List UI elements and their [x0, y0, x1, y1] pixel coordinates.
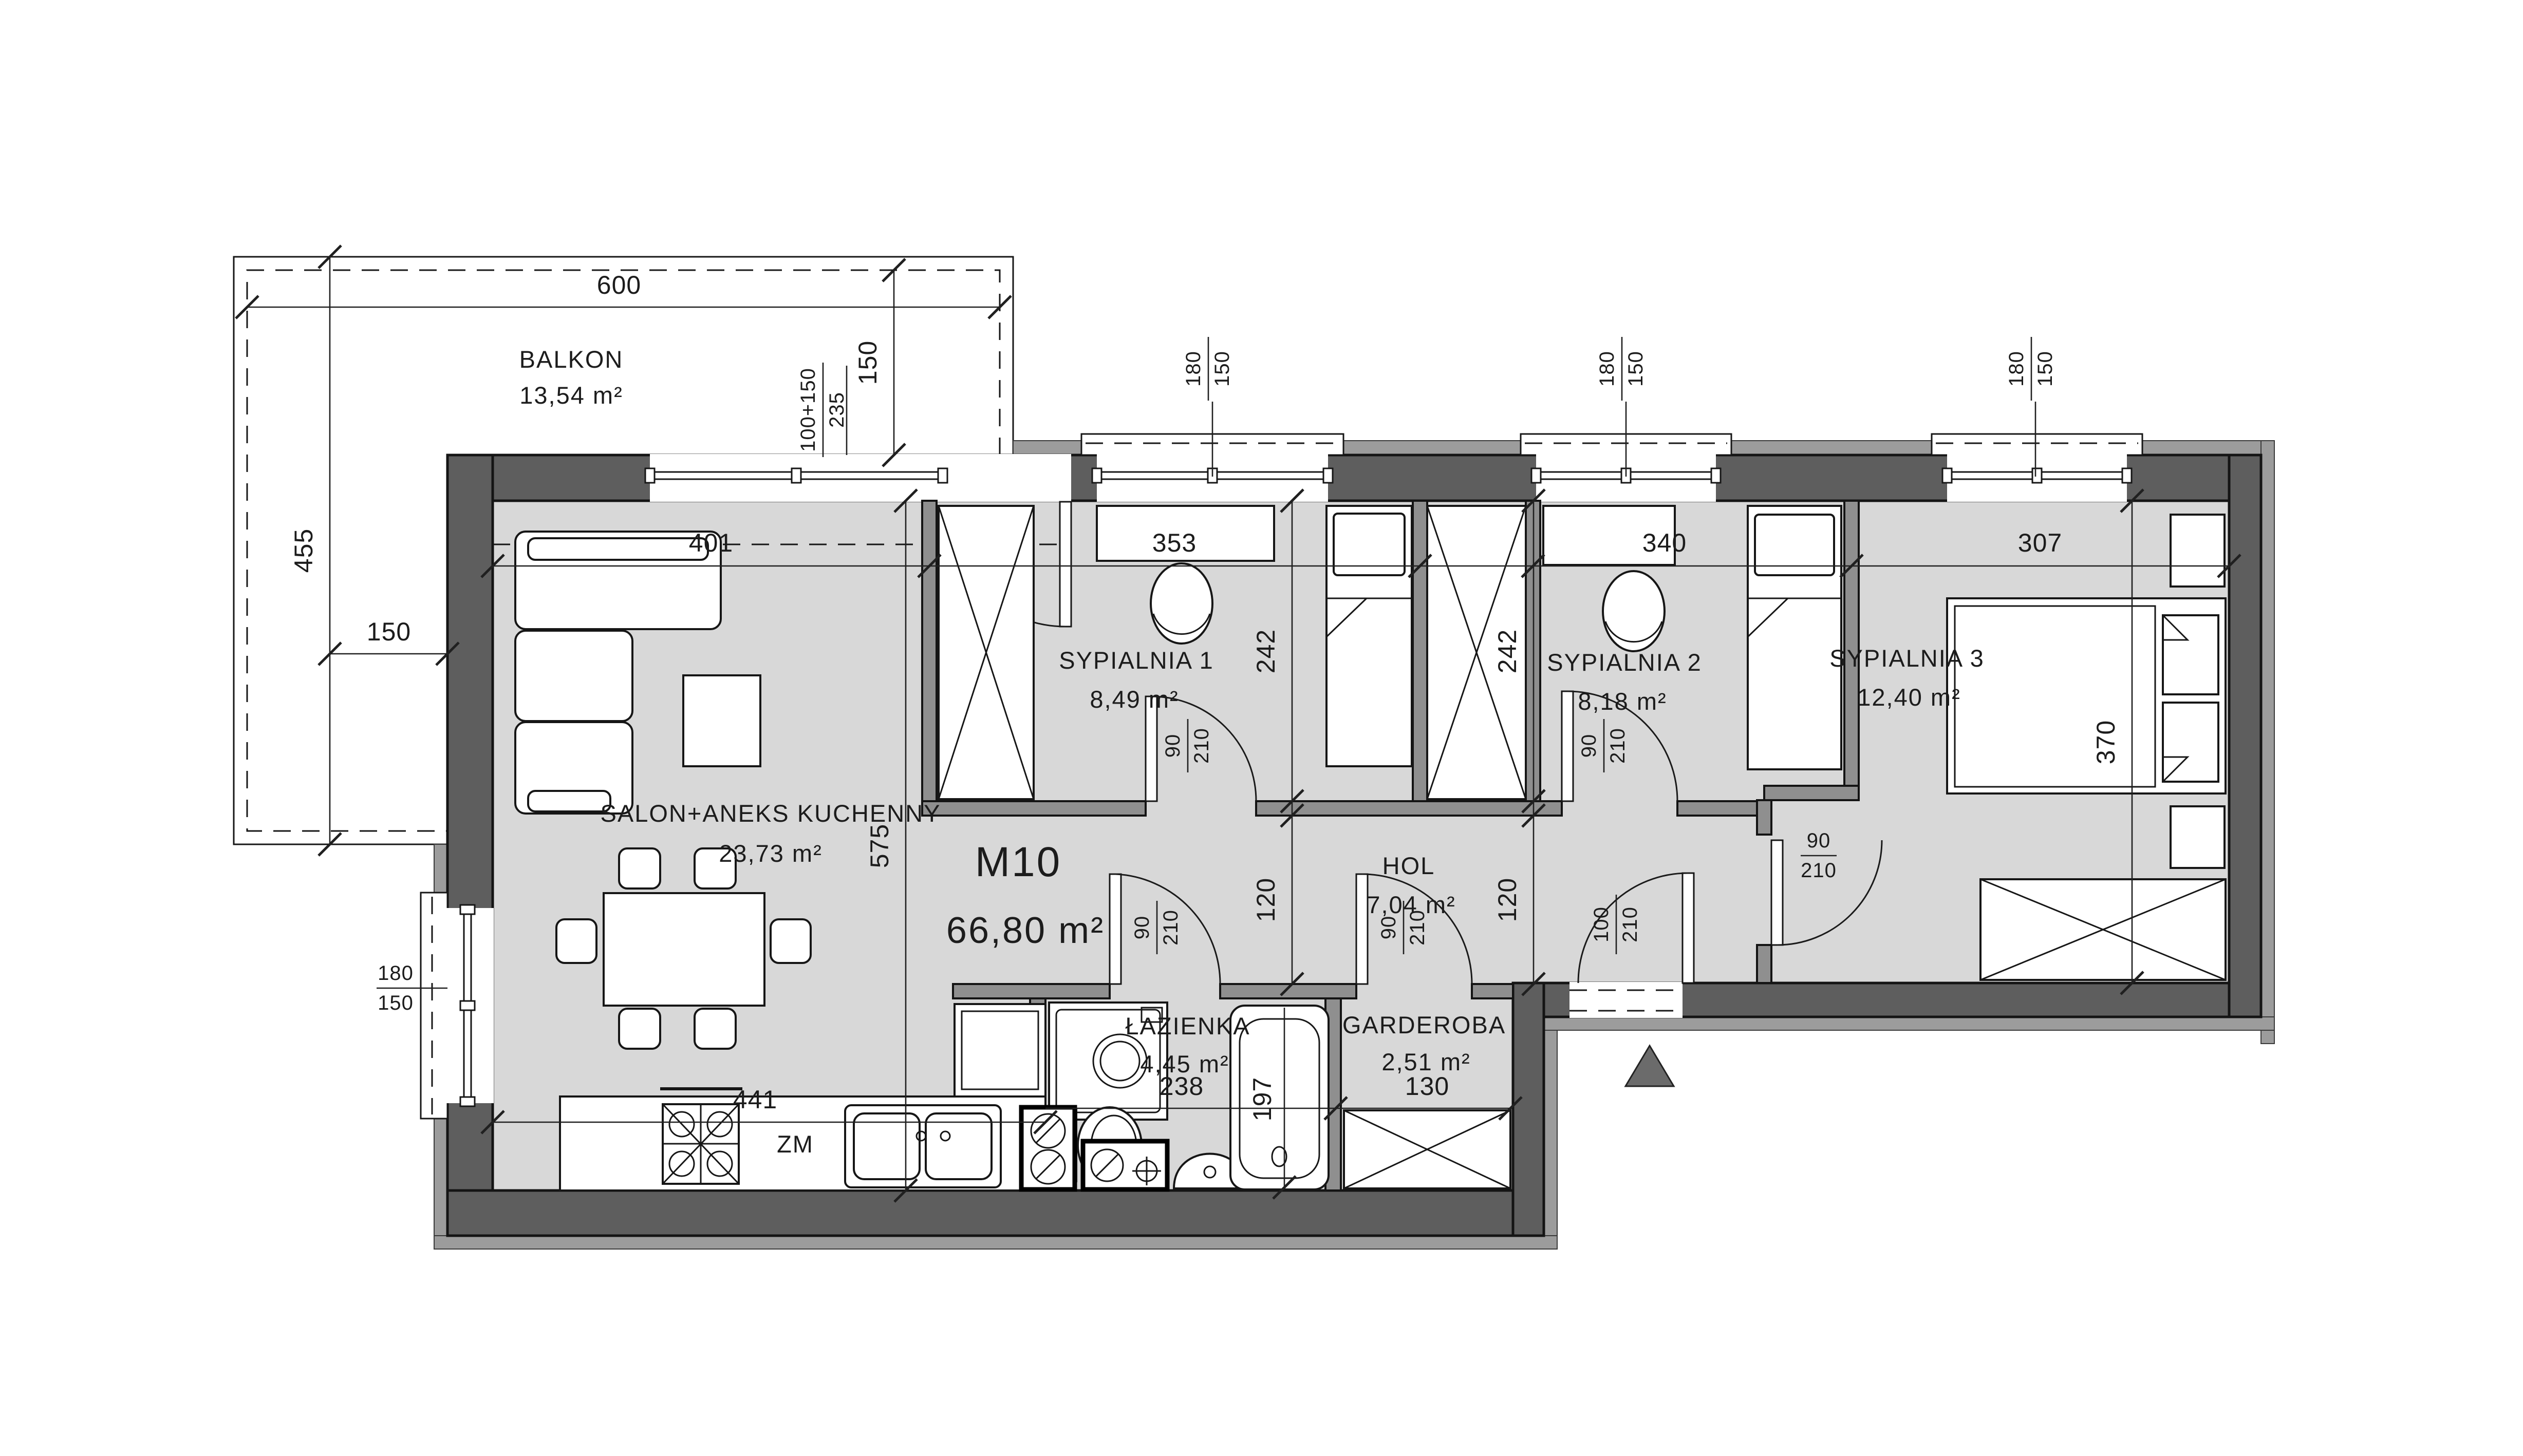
balcony-opening [650, 454, 1071, 502]
label-s2-name: SYPIALNIA 2 [1547, 649, 1702, 676]
wall-salon-s1 [922, 501, 937, 801]
sink-bowl-right [926, 1113, 992, 1179]
dim-s2-depth: 242 [1493, 629, 1522, 673]
svg-text:210: 210 [1619, 906, 1641, 942]
svg-text:180: 180 [378, 962, 414, 985]
window-salon-mullion [460, 905, 475, 914]
balcony-mullion [645, 468, 655, 483]
label-salon-area: 23,73 m² [719, 840, 822, 867]
door-entry-leaf [1683, 873, 1694, 983]
label-s1-area: 8,49 m² [1090, 686, 1179, 713]
balcony-door-leaf [1060, 502, 1071, 627]
svg-text:100+150: 100+150 [797, 368, 819, 452]
wall-step [1513, 983, 1544, 1236]
svg-text:180: 180 [1182, 351, 1205, 387]
dim-salon-width: 401 [689, 528, 733, 557]
wall-bedrooms-bottom-b [1256, 801, 1562, 816]
dim-balcony-side-height: 455 [289, 528, 318, 573]
label-s3-area: 12,40 m² [1857, 684, 1960, 711]
window-salon-mullion [460, 1097, 475, 1106]
wall-right [2229, 455, 2261, 1017]
door-bath-leaf [1110, 874, 1121, 984]
window-s1-mullion [1092, 468, 1101, 483]
s3-pillow [2163, 703, 2218, 782]
label-hol-name: HOL [1382, 852, 1435, 879]
svg-text:242: 242 [1493, 629, 1522, 673]
label-garderoba-area: 2,51 m² [1381, 1048, 1470, 1075]
dim-s1-width: 353 [1152, 528, 1197, 557]
svg-text:210: 210 [1801, 859, 1837, 882]
svg-text:90: 90 [1162, 734, 1184, 758]
s3-nightstand-bottom [2171, 806, 2225, 868]
svg-text:180: 180 [2005, 351, 2028, 387]
fridge [955, 1004, 1045, 1096]
dim-s2-width: 340 [1642, 528, 1687, 557]
svg-text:197: 197 [1248, 1077, 1277, 1121]
wall-bedrooms-bottom-a [922, 801, 1146, 816]
dim-s1-depth: 242 [1251, 629, 1280, 673]
dining-chair [771, 919, 811, 963]
dim-s3-depth: 370 [2091, 720, 2120, 764]
balcony-mullion [792, 468, 801, 483]
label-unit-area: 66,80 m² [946, 910, 1105, 951]
label-s3-name: SYPIALNIA 3 [1829, 645, 1985, 672]
window-s1-mullion [1323, 468, 1333, 483]
coffee-table [683, 675, 760, 766]
wall-s3-jog [1764, 786, 1859, 800]
dim-balcony-width: 600 [597, 271, 641, 299]
dining-chair [619, 848, 660, 888]
svg-text:150: 150 [853, 341, 882, 385]
label-balkon-area: 13,54 m² [519, 382, 623, 409]
wall-bottom-left [447, 1190, 1544, 1236]
label-lazienka-name: ŁAZIENKA [1125, 1012, 1250, 1039]
wall-s3-hol-lower [1757, 945, 1771, 983]
door-garderoba-leaf [1356, 874, 1368, 984]
dim-s3-width: 307 [2018, 528, 2062, 557]
s3-nightstand-top [2171, 515, 2225, 587]
entry-opening [1569, 982, 1683, 1018]
window-s2-label: 180 150 [1596, 337, 1647, 401]
svg-text:370: 370 [2091, 720, 2120, 764]
dim-kitchen-width: 441 [733, 1085, 777, 1114]
label-garderoba-name: GARDEROBA [1342, 1011, 1506, 1038]
window-s3-mullion [1942, 468, 1952, 483]
band-step [1544, 1030, 1557, 1249]
window-salon-sill [421, 893, 447, 1119]
wall-s3-hol-upper [1757, 800, 1771, 835]
svg-text:242: 242 [1251, 629, 1280, 673]
window-s3-label: 180 150 [2005, 337, 2057, 401]
band-bottom-right [1544, 1017, 2274, 1030]
balcony-door-label: 100+150 235 [797, 363, 848, 457]
balcony-mullion [938, 468, 947, 483]
svg-text:235: 235 [826, 392, 848, 428]
window-s2-mullion [1711, 468, 1721, 483]
dim-balcony-side-width: 150 [367, 617, 411, 646]
wall-hol-gard [1472, 984, 1513, 998]
label-salon-name: SALON+ANEKS KUCHENNY [601, 800, 941, 827]
dim-tub-length: 197 [1248, 1077, 1277, 1121]
dining-chair [695, 1009, 736, 1049]
sofa-section-mid [515, 631, 632, 721]
dim-salon-depth: 575 [865, 824, 894, 868]
dim-garderoba-width: 130 [1405, 1072, 1449, 1101]
north-arrow-icon [1625, 1046, 1674, 1086]
svg-text:100: 100 [1590, 906, 1613, 942]
label-unit-code: M10 [975, 839, 1062, 885]
svg-text:210: 210 [1606, 728, 1629, 764]
label-hol-area: 7,04 m² [1367, 891, 1455, 918]
window-s1-label: 180 150 [1182, 337, 1234, 401]
svg-text:120: 120 [1493, 878, 1522, 922]
wall-s1-right [1413, 501, 1427, 801]
s2-chair [1603, 571, 1665, 651]
svg-text:180: 180 [1596, 351, 1618, 387]
window-s3-sill [1932, 434, 2142, 455]
svg-text:150: 150 [378, 992, 414, 1014]
svg-text:210: 210 [1160, 910, 1182, 946]
svg-text:150: 150 [1624, 351, 1647, 387]
label-s2-area: 8,18 m² [1578, 688, 1667, 715]
label-s1-name: SYPIALNIA 1 [1059, 647, 1214, 674]
wall-bedrooms-bottom-c [1677, 801, 1764, 816]
svg-text:575: 575 [865, 824, 894, 868]
svg-text:90: 90 [1807, 829, 1831, 852]
window-s2-mullion [1531, 468, 1541, 483]
svg-text:90: 90 [1131, 916, 1153, 940]
door-s3-leaf [1771, 840, 1783, 945]
sofa-arm-cushion [528, 791, 610, 811]
label-lazienka-area: 4,45 m² [1140, 1050, 1229, 1077]
svg-text:90: 90 [1578, 734, 1600, 758]
svg-text:455: 455 [289, 528, 318, 573]
floor-plan: 600 150 455 150 401 353 340 307 [0, 0, 2523, 1456]
label-dishwasher: ZM [777, 1130, 814, 1158]
svg-text:150: 150 [2034, 351, 2057, 387]
window-s3-mullion [2032, 468, 2042, 483]
svg-text:90: 90 [1377, 916, 1400, 940]
svg-text:120: 120 [1251, 878, 1280, 922]
svg-text:210: 210 [1190, 728, 1213, 764]
wall-hol-bath-a [953, 984, 1110, 998]
s1-chair [1151, 563, 1212, 644]
dining-chair [619, 1009, 660, 1049]
dining-chair [556, 919, 596, 963]
svg-text:150: 150 [1211, 351, 1234, 387]
wall-s2-s3 [1844, 501, 1859, 786]
dim-hol-depth-left: 120 [1251, 878, 1280, 922]
dim-hol-depth-right: 120 [1493, 878, 1522, 922]
s3-pillow [2163, 615, 2218, 694]
window-salon-mullion [460, 1001, 475, 1010]
window-s3-mullion [2122, 468, 2132, 483]
furniture-garderoba [1344, 1110, 1510, 1188]
label-balkon-name: BALKON [519, 346, 624, 373]
band-bottom-left [434, 1236, 1557, 1249]
dining-table [604, 893, 764, 1006]
sink-bowl-left [854, 1113, 920, 1179]
door-s2-leaf [1562, 691, 1573, 801]
sofa-back-cushion [528, 538, 708, 560]
dim-balcony-depth: 150 [853, 341, 882, 385]
band-right [2261, 441, 2274, 1044]
